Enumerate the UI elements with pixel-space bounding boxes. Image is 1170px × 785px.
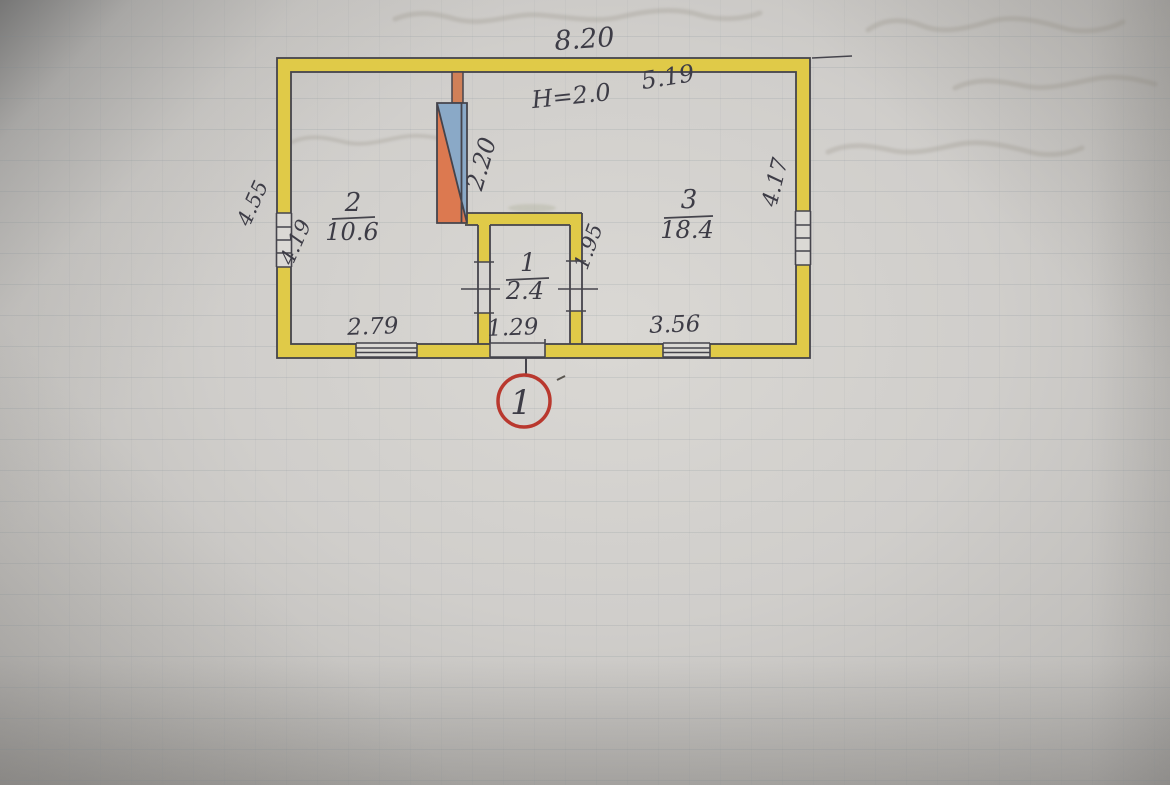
window-bottom-left	[356, 343, 417, 357]
ink-speck	[557, 376, 565, 380]
dim-right-inner: 4.17	[757, 156, 793, 211]
entrance-door	[490, 339, 545, 357]
pencil-smudge	[508, 204, 556, 212]
hall-left-wall-upper	[478, 225, 490, 262]
ghost-stroke	[955, 77, 1155, 88]
photographed-paper-sheet: 8.20 5.19 H=2.0 2.20 4.55 4.19 4.17 1.95…	[0, 0, 1170, 785]
room-number: 2	[344, 188, 362, 218]
dim-left-outer: 4.55	[232, 177, 273, 230]
ghost-stroke	[292, 136, 450, 144]
window-glass	[356, 343, 417, 357]
room-label-2: 2 10.6	[325, 188, 378, 246]
window-bottom-right	[663, 343, 710, 357]
dim-overall-width: 8.20	[553, 22, 615, 57]
ghost-writing	[292, 11, 1155, 212]
room-label-1: 1 2.4	[505, 248, 549, 305]
floor-plan-drawing: 8.20 5.19 H=2.0 2.20 4.55 4.19 4.17 1.95…	[0, 0, 1170, 785]
dim-bottom-center: 1.29	[487, 314, 539, 342]
room-number: 3	[681, 185, 698, 215]
marker-number: 1	[510, 383, 532, 423]
hall-right-wall-lower	[570, 311, 582, 344]
ghost-stroke	[395, 11, 760, 22]
room-area: 18.4	[660, 216, 713, 244]
entrance-marker: 1	[498, 357, 565, 427]
chimney	[452, 72, 463, 103]
window-glass	[663, 343, 710, 357]
dim-bottom-left: 2.79	[346, 313, 399, 341]
stove	[437, 72, 467, 223]
dimension-extension-line	[812, 56, 852, 58]
window-right	[796, 211, 811, 265]
room-labels: 2 10.6 1 2.4 3 18.4	[325, 185, 713, 305]
room-number: 1	[520, 248, 536, 277]
door-opening	[490, 343, 545, 357]
hall-top-wall	[465, 213, 582, 225]
room-area: 2.4	[505, 277, 544, 305]
ghost-stroke	[868, 19, 1123, 31]
dim-bottom-right: 3.56	[649, 311, 701, 339]
left-opening-jambs	[474, 262, 494, 313]
room-area: 10.6	[325, 218, 378, 246]
dim-ceiling-height: H=2.0	[529, 78, 612, 114]
room-label-3: 3 18.4	[660, 185, 713, 244]
ghost-stroke	[828, 143, 1082, 155]
